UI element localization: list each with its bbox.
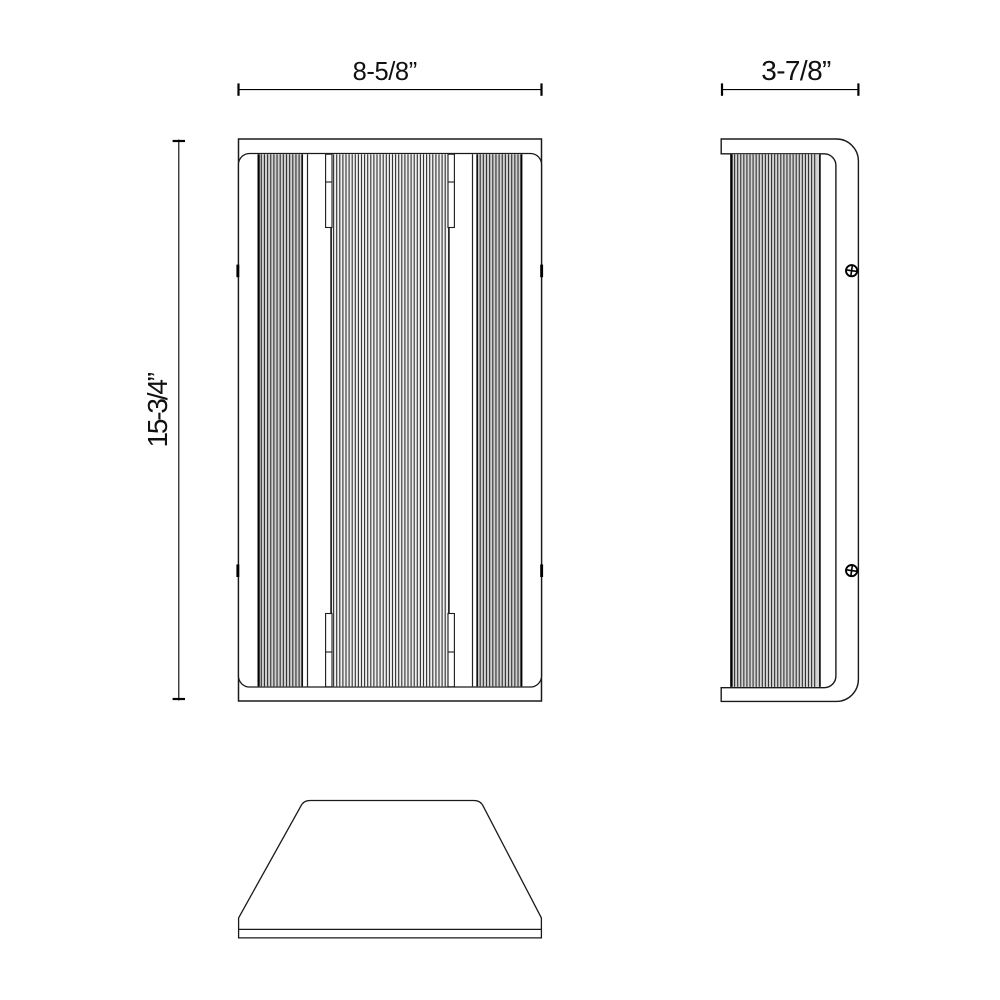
svg-text:15-3/4”: 15-3/4” bbox=[142, 372, 173, 447]
svg-text:3-7/8”: 3-7/8” bbox=[761, 55, 831, 86]
svg-text:8-5/8”: 8-5/8” bbox=[353, 58, 417, 86]
